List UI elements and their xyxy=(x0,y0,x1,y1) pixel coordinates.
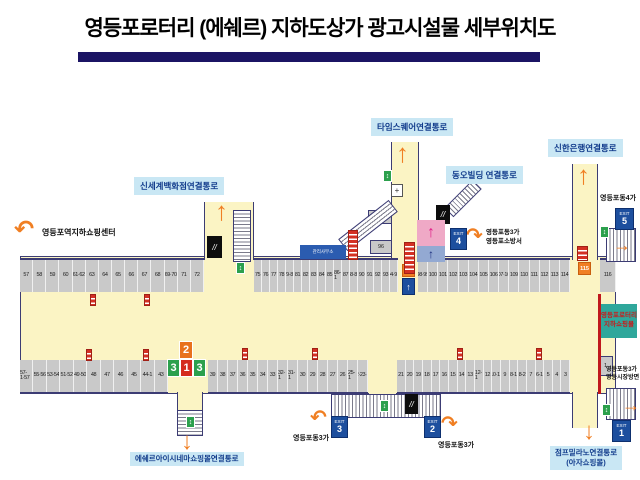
down-arrow-icon: ↓ xyxy=(181,430,193,454)
turn-right-arrow-icon: ↷ xyxy=(466,226,483,246)
title-underline-bar xyxy=(78,52,540,62)
red-tick-marker xyxy=(242,348,248,360)
red-tick-marker xyxy=(144,294,150,306)
shop-cell: 20 xyxy=(406,360,415,392)
escher-corridor xyxy=(177,392,203,412)
up-arrow-icon: ↑ xyxy=(396,140,409,166)
exit-number: 1 xyxy=(619,429,624,438)
shop-cell: 87 xyxy=(342,260,350,292)
up-arrow-icon: ↑ xyxy=(427,224,435,242)
shop-cell: 86-1 xyxy=(334,260,342,292)
bottom-row-right: 21201918171615141312-11210·1198-18-276-1… xyxy=(397,360,570,394)
shop-cell: 14 xyxy=(458,360,467,392)
exit-number: 5 xyxy=(622,217,627,226)
shop-cell: 104 xyxy=(469,260,479,292)
red-tick-marker xyxy=(86,349,92,361)
red-sign-marker xyxy=(404,242,415,274)
jump-milano-line1: 점프밀라노연결통로 xyxy=(555,448,617,458)
shop-cell: 112 xyxy=(540,260,550,292)
down-arrow-icon: ↓ xyxy=(583,420,595,444)
shop-cell: 7 xyxy=(527,360,536,392)
dongo-pink-passage: ↑ xyxy=(417,220,445,246)
shop-cell: 27 xyxy=(328,360,338,392)
shop-cell: 59 xyxy=(46,260,59,292)
exit32-escalator-icon: // xyxy=(405,394,418,414)
red-tick-marker xyxy=(536,348,542,360)
shop-cell: 101 xyxy=(438,260,448,292)
shop-cell: 110 xyxy=(519,260,529,292)
exit-2-badge: EXIT 2 xyxy=(424,416,441,438)
shop-cell: 30 xyxy=(298,360,308,392)
red-sign-marker xyxy=(348,230,358,260)
label-exit5-area: 영등포동4가 xyxy=(600,194,636,203)
top-row-mid: 7576777879·80818283848586-18788·89909192… xyxy=(254,258,398,292)
shop-cell: 61·62 xyxy=(73,260,86,292)
shop-cell: 77 xyxy=(270,260,278,292)
shop-cell: 29 xyxy=(308,360,318,392)
label-exit2-area: 영등포동3가 xyxy=(438,441,474,450)
shop-cell: 84 xyxy=(318,260,326,292)
top-row-right: 98·99100101102103104105106107·1081091101… xyxy=(418,258,570,292)
exit1-area-line2: 영등시장방면 xyxy=(606,374,639,382)
shop-cell: 94·95 xyxy=(390,260,398,292)
shop-cell: 51·52 xyxy=(60,360,73,392)
right-arrow-icon: → xyxy=(622,396,640,414)
stair-marker-icon: ↕ xyxy=(236,262,245,274)
shop-cell: 32-1 xyxy=(278,360,288,392)
shop-cell: 4 xyxy=(553,360,562,392)
shop-cell: 44-1 xyxy=(141,360,154,392)
red-tick-marker xyxy=(143,349,149,361)
shop-cell: 5 xyxy=(544,360,553,392)
shop-cell: 93 xyxy=(382,260,390,292)
shop-cell: 45 xyxy=(128,360,141,392)
ad-marker-3b: 3 xyxy=(193,359,206,377)
shop-cell-96: 96 xyxy=(370,240,392,254)
shop-cell: 35 xyxy=(248,360,258,392)
label-dongo-passage: 동오빌딩 연결통로 xyxy=(446,166,523,184)
shop-cell: 12 xyxy=(484,360,493,392)
ad-marker-2: 2 xyxy=(179,341,193,359)
shop-cell: 92 xyxy=(374,260,382,292)
up-arrow-icon: ↑ xyxy=(577,162,590,188)
shop-cell: 100 xyxy=(428,260,438,292)
label-escher-passage: 에쉐르아이시네마쇼핑몰연결통로 xyxy=(130,452,244,466)
red-tick-marker xyxy=(312,348,318,360)
shop-cell: 83 xyxy=(310,260,318,292)
shop-cell: 36 xyxy=(238,360,248,392)
shop-cell: 47 xyxy=(101,360,114,392)
shop-cell: 98·99 xyxy=(418,260,428,292)
shop-cell: 57 xyxy=(20,260,33,292)
label-station: 영등포역지하쇼핑센터 xyxy=(42,228,116,239)
shop-cell: 109 xyxy=(509,260,519,292)
stair-marker-icon: ↕ xyxy=(602,404,611,416)
exit-4-badge: EXIT 4 xyxy=(450,228,467,250)
shop-cell: 34 xyxy=(258,360,268,392)
shop-cell: 3 xyxy=(561,360,570,392)
label-shinsegae-passage: 신세계백화점연결통로 xyxy=(134,177,224,195)
shop-cell: 66 xyxy=(125,260,138,292)
shop-cell: 39 xyxy=(208,360,218,392)
top-row-left: 5758596061·6263646566676869·707172 xyxy=(20,258,204,292)
shop-cell: 57-1·57 xyxy=(20,360,33,392)
shop-cell: 10·11 xyxy=(492,360,501,392)
shop-cell: 33 xyxy=(268,360,278,392)
label-exit3-area: 영등포동3가 xyxy=(293,434,329,443)
shop-cell: 25-1 xyxy=(348,360,358,392)
mall-name-box: 영등포로터리 지하쇼핑몰 xyxy=(601,304,637,338)
shop-cell: 68 xyxy=(151,260,164,292)
shop-cell: 43 xyxy=(155,360,168,392)
shop-cell: 63 xyxy=(86,260,99,292)
red-sign-marker xyxy=(577,246,588,261)
exit-number: 4 xyxy=(456,237,461,246)
shop-cell: 55·56 xyxy=(33,360,46,392)
shop-cell: 37 xyxy=(228,360,238,392)
bottom-row-mid: 3938373635343332-131-1302928272625-122·2… xyxy=(208,360,368,394)
exit-5-badge: EXIT 5 xyxy=(615,208,634,230)
turn-left-arrow-icon: ↶ xyxy=(14,218,34,242)
red-tick-marker xyxy=(457,348,463,360)
shinsegae-stairs xyxy=(233,210,251,262)
turn-right-arrow-icon: ↷ xyxy=(441,414,458,434)
shop-cell: 28 xyxy=(318,360,328,392)
underground-mall-map-page: 영등포로터리 (에쉐르) 지하도상가 광고시설물 세부위치도 575859606… xyxy=(0,0,640,480)
shop-cell: 107·108 xyxy=(499,260,509,292)
shop-cell: 81 xyxy=(294,260,302,292)
shop-cell: 13 xyxy=(466,360,475,392)
shop-cell: 64 xyxy=(99,260,112,292)
pedestrian-sign-icon: ↑ xyxy=(402,278,415,295)
shop-cell: 12-1 xyxy=(475,360,484,392)
shop-cell: 21 xyxy=(397,360,406,392)
stair-marker-icon: ↕ xyxy=(186,416,195,428)
shop-cell: 53·54 xyxy=(47,360,60,392)
exit-number: 2 xyxy=(430,425,435,434)
shop-cell-116: 116 xyxy=(600,260,616,292)
exit-number: 3 xyxy=(337,425,342,434)
shop-cell: 46 xyxy=(114,360,127,392)
stair-marker-icon: ↕ xyxy=(600,226,609,238)
exit-3-badge: EXIT 3 xyxy=(331,416,348,438)
stair-marker-icon: ↕ xyxy=(380,400,389,412)
shop-cell: 79·80 xyxy=(286,260,294,292)
label-timessquare-passage: 타임스퀘어연결통로 xyxy=(371,118,453,136)
shop-cell-115-orange: 115 xyxy=(578,262,591,275)
shop-cell: 111 xyxy=(530,260,540,292)
shop-cell: 26 xyxy=(338,360,348,392)
shop-cell: 19 xyxy=(414,360,423,392)
exit4-area-line2: 영등포소방서 xyxy=(486,238,522,247)
shop-cell: 60 xyxy=(59,260,72,292)
label-exit1-area: 영등포동3가 영등시장방면 xyxy=(606,366,639,382)
shop-cell: 8-2 xyxy=(518,360,527,392)
shop-cell: 49·50 xyxy=(74,360,87,392)
shop-cell: 106 xyxy=(489,260,499,292)
shop-cell: 18 xyxy=(423,360,432,392)
shop-cell: 76 xyxy=(262,260,270,292)
ad-marker-3a: 3 xyxy=(167,359,180,377)
shop-cell: 102 xyxy=(448,260,458,292)
label-jump-milano-passage: 점프밀라노연결통로 (아자쇼핑몰) xyxy=(550,446,622,470)
shop-cell: 58 xyxy=(33,260,46,292)
aid-cross-icon: + xyxy=(391,184,403,197)
shop-cell: 6-1 xyxy=(536,360,545,392)
exit4-area-line1: 영등포동3가 xyxy=(486,229,522,238)
shop-cell: 75 xyxy=(254,260,262,292)
right-arrow-icon: → xyxy=(613,236,631,254)
shop-cell: 91 xyxy=(366,260,374,292)
shop-cell: 15 xyxy=(449,360,458,392)
exit-1-badge: EXIT 1 xyxy=(612,420,631,442)
dongo-blue-passage: ↑ xyxy=(417,246,445,262)
shop-cell: 90 xyxy=(358,260,366,292)
red-tick-marker xyxy=(90,294,96,306)
ad-marker-1: 1 xyxy=(180,359,193,377)
mall-name-line1: 영등포로터리 xyxy=(601,312,637,321)
shop-cell: 16 xyxy=(440,360,449,392)
shop-cell: 65 xyxy=(112,260,125,292)
shop-cell: 105 xyxy=(479,260,489,292)
office-box: 관리사무소 xyxy=(300,245,346,259)
shop-cell: 67 xyxy=(138,260,151,292)
shop-cell: 71 xyxy=(178,260,191,292)
shop-cell: 88·89 xyxy=(350,260,358,292)
shop-cell: 17 xyxy=(432,360,441,392)
shop-cell: 72 xyxy=(191,260,204,292)
mall-name-line2: 지하쇼핑몰 xyxy=(601,321,637,330)
shop-cell: 38 xyxy=(218,360,228,392)
stair-marker-icon: ↕ xyxy=(383,170,392,182)
shop-cell: 103 xyxy=(459,260,469,292)
shop-cell: 113 xyxy=(550,260,560,292)
shop-cell: 85 xyxy=(326,260,334,292)
bottom-row-left: 57-1·5755·5653·5451·5249·504847464544-14… xyxy=(20,360,168,394)
exit1-area-line1: 영등포동3가 xyxy=(606,366,639,374)
page-title: 영등포로터리 (에쉐르) 지하도상가 광고시설물 세부위치도 xyxy=(0,12,640,42)
shop-cell: 9 xyxy=(501,360,510,392)
shop-cell: 8-1 xyxy=(510,360,519,392)
top-row-116: 116 xyxy=(600,258,616,292)
shop-cell: 31-1 xyxy=(288,360,298,392)
shop-cell: 78 xyxy=(278,260,286,292)
shop-cell: 48 xyxy=(87,360,100,392)
shop-cell: 82 xyxy=(302,260,310,292)
label-shinhan-passage: 신한은행연결통로 xyxy=(548,139,623,157)
label-exit4-area: 영등포동3가 영등포소방서 xyxy=(486,229,522,247)
shop-cell: 69·70 xyxy=(165,260,178,292)
turn-left-arrow-icon: ↶ xyxy=(310,408,327,428)
jump-milano-line2: (아자쇼핑몰) xyxy=(555,458,617,468)
up-arrow-icon: ↑ xyxy=(428,247,434,261)
up-arrow-icon: ↑ xyxy=(215,198,228,224)
shop-cell: 114 xyxy=(560,260,570,292)
shinsegae-escalator-icon: // xyxy=(207,236,222,258)
shop-cell: 22·23·24 xyxy=(358,360,368,392)
